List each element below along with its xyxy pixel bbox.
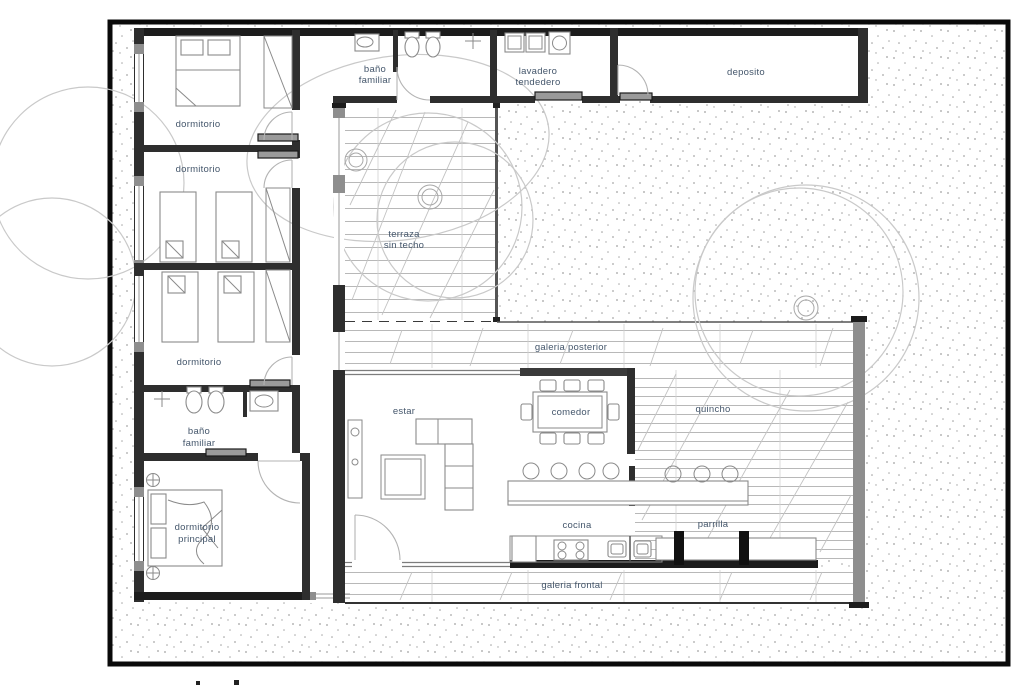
room-label-comedor: comedor — [552, 407, 591, 418]
room-label-deposito: deposito — [727, 67, 765, 78]
toilet-icon — [186, 391, 202, 413]
chair-icon — [608, 404, 619, 420]
fridge-icon — [512, 536, 536, 562]
living-south-wall — [510, 560, 818, 568]
chair-icon — [588, 433, 604, 444]
room-label-dormitorio-1: dormitorio — [176, 119, 221, 130]
deposito-south-wall — [650, 96, 868, 103]
room-label-lavadero-2: tendedero — [515, 77, 560, 88]
bidet-icon — [426, 37, 440, 57]
deposito-east-wall — [858, 28, 868, 103]
room-label-lavadero: lavadero — [519, 66, 557, 77]
principal-south-wall — [134, 592, 310, 600]
chair-icon — [588, 380, 604, 391]
room-label-estar: estar — [393, 406, 415, 417]
sliding-door — [620, 93, 652, 100]
room-label-bano-familiar-top: baño — [364, 64, 386, 75]
double-bed-icon — [176, 36, 240, 106]
chair-icon — [564, 380, 580, 391]
chair-icon — [540, 433, 556, 444]
chair-icon — [540, 380, 556, 391]
vanity-sink-icon — [250, 391, 278, 411]
room-label-parrilla: parrilla — [698, 519, 729, 530]
grill-post-icon — [739, 531, 749, 565]
sliding-door — [206, 449, 246, 456]
room-label-galeria-posterior: galeria posterior — [535, 342, 607, 353]
room-label-cocina: cocina — [563, 520, 592, 531]
quincho-east-wall — [853, 318, 865, 606]
living-east-wall — [627, 368, 635, 454]
room-label-galeria-frontal: galeria frontal — [541, 580, 602, 591]
room-label-bano-familiar-left-2: familiar — [183, 438, 216, 449]
comedor-north-wall — [520, 368, 632, 376]
terraza-right-edge — [495, 103, 498, 322]
toilet-icon — [405, 37, 419, 57]
room-label-dormitorio-principal: dormitorio — [175, 522, 220, 533]
chair-icon — [564, 433, 580, 444]
bidet-icon — [208, 391, 224, 413]
room-label-dormitorio-2: dormitorio — [176, 164, 221, 175]
chair-icon — [521, 404, 532, 420]
room-label-dormitorio-principal-2: principal — [178, 534, 216, 545]
sliding-door — [535, 92, 582, 100]
floor-plan-canvas: baño familiar lavadero tendedero deposit… — [0, 0, 1024, 685]
deck-terraza — [345, 103, 500, 322]
north-exterior-wall — [134, 28, 866, 36]
room-label-quincho: quincho — [695, 404, 730, 415]
grill-post-icon — [674, 531, 684, 565]
room-label-terraza-2: sin techo — [384, 240, 424, 251]
cropped-caption-fragment — [196, 680, 239, 685]
room-label-dormitorio-3: dormitorio — [177, 357, 222, 368]
sliding-door — [250, 380, 290, 387]
floor-plan-page: baño familiar lavadero tendedero deposit… — [0, 0, 1024, 685]
laundry-fixtures — [505, 32, 570, 54]
sliding-door — [258, 151, 298, 158]
room-label-terraza: terraza — [388, 229, 420, 240]
room-label-bano-familiar-top-2: familiar — [359, 75, 392, 86]
west-exterior-wall — [134, 28, 144, 602]
room-label-bano-familiar-left: baño — [188, 426, 210, 437]
terraza-west-wall — [332, 103, 346, 603]
